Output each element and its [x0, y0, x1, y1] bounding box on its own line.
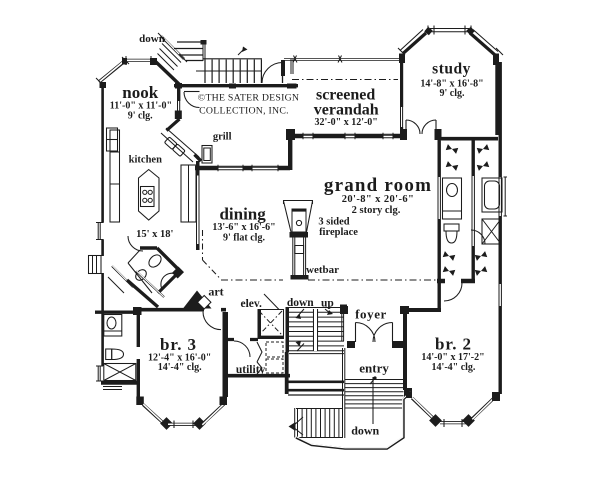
- svg-text:wetbar: wetbar: [306, 264, 339, 276]
- svg-text:kitchen: kitchen: [129, 155, 162, 166]
- svg-text:verandah: verandah: [314, 102, 379, 119]
- svg-text:art: art: [208, 285, 223, 299]
- svg-text:down: down: [351, 424, 379, 438]
- svg-text:dining: dining: [219, 205, 266, 224]
- svg-text:20'-8" x 20'-6": 20'-8" x 20'-6": [342, 194, 415, 205]
- svg-text:elev.: elev.: [240, 298, 262, 310]
- svg-text:2 story clg.: 2 story clg.: [352, 205, 401, 216]
- svg-text:study: study: [432, 61, 471, 78]
- svg-text:up: up: [321, 298, 334, 310]
- svg-text:down: down: [287, 297, 314, 309]
- svg-text:nook: nook: [122, 83, 158, 102]
- svg-text:br. 3: br. 3: [160, 335, 197, 354]
- svg-text:fireplace: fireplace: [319, 227, 358, 238]
- svg-text:9' clg.: 9' clg.: [128, 111, 153, 122]
- svg-text:©THE SATER DESIGN: ©THE SATER DESIGN: [198, 93, 300, 104]
- svg-text:9' clg.: 9' clg.: [440, 88, 465, 99]
- svg-text:entry: entry: [359, 361, 389, 376]
- svg-text:COLLECTION, INC.: COLLECTION, INC.: [199, 106, 289, 117]
- svg-text:utility: utility: [236, 364, 266, 376]
- svg-text:down: down: [139, 33, 165, 45]
- svg-text:13'-6" x 16'-6": 13'-6" x 16'-6": [212, 222, 275, 233]
- svg-text:grand room: grand room: [324, 175, 432, 196]
- svg-text:grill: grill: [213, 131, 232, 142]
- svg-text:9' flat clg.: 9' flat clg.: [223, 233, 265, 244]
- svg-text:14'-4" clg.: 14'-4" clg.: [158, 362, 202, 373]
- svg-text:br. 2: br. 2: [435, 335, 472, 354]
- svg-text:15' x 18': 15' x 18': [136, 229, 173, 240]
- svg-text:32'-0" x 12'-0": 32'-0" x 12'-0": [315, 117, 378, 128]
- svg-text:foyer: foyer: [355, 307, 387, 322]
- svg-text:14'-4" clg.: 14'-4" clg.: [432, 362, 476, 373]
